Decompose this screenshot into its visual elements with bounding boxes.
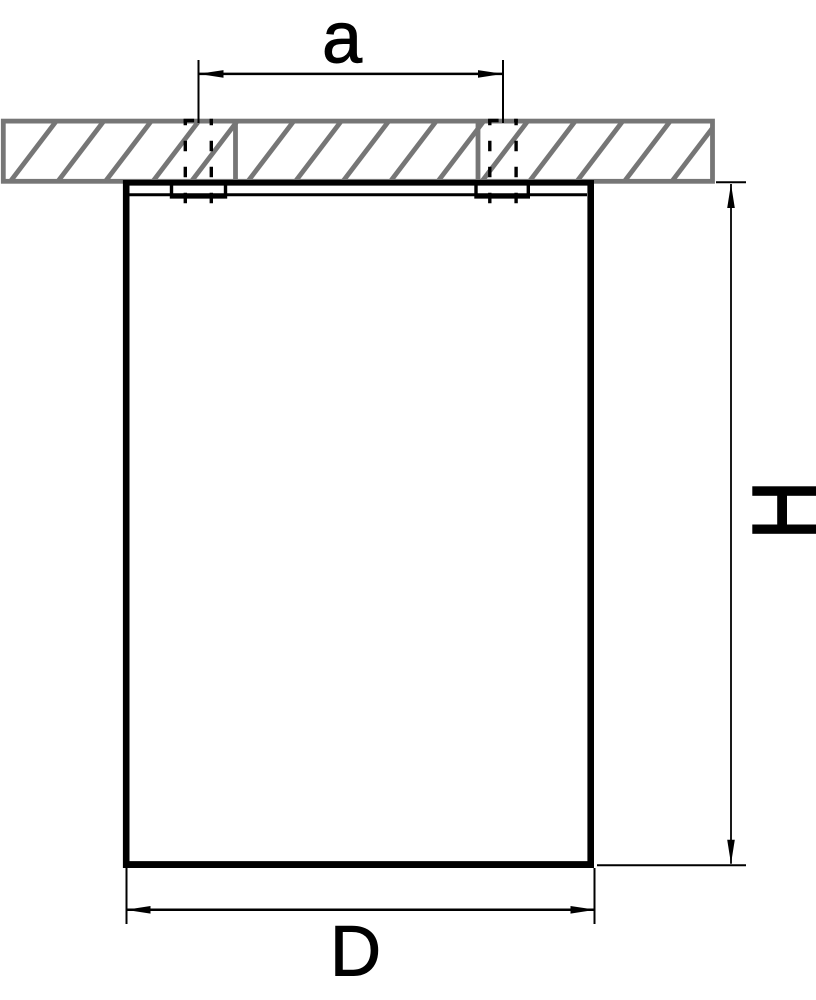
svg-text:D: D	[330, 913, 381, 992]
svg-text:a: a	[322, 0, 363, 79]
